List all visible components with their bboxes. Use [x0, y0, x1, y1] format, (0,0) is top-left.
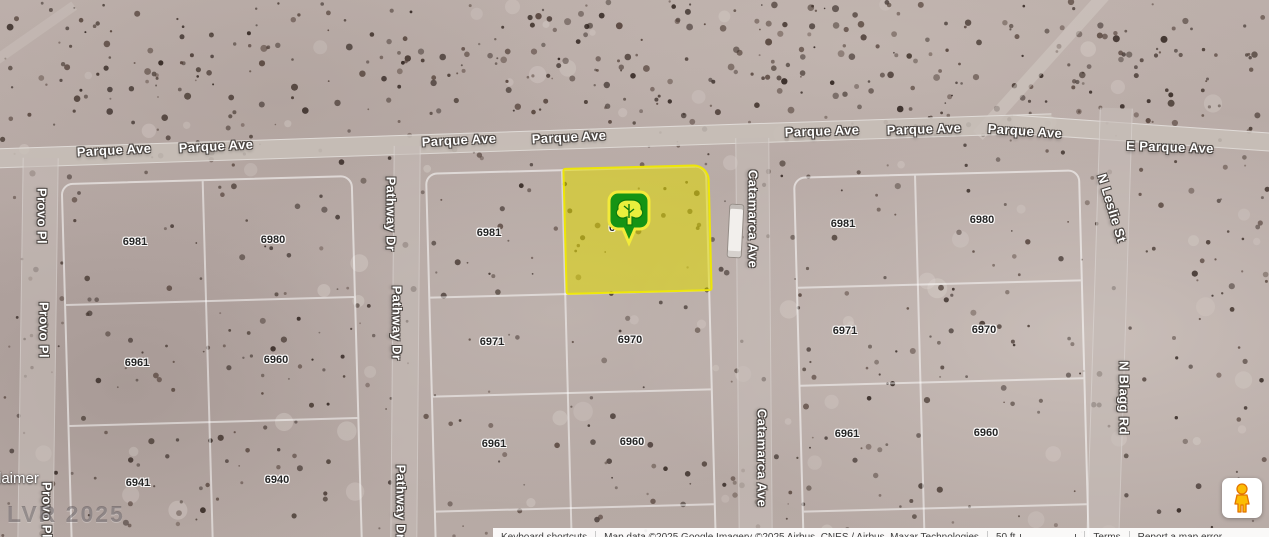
street-label-provo-pl: Provo Pl [37, 302, 52, 358]
report-map-error-link[interactable]: Report a map error [1130, 532, 1230, 537]
street-label-parque-ave: Parque Ave [886, 120, 961, 138]
parcel-number: 6941 [126, 477, 150, 489]
parcel-number: 6960 [974, 427, 998, 439]
parcel-number: 6970 [618, 334, 642, 346]
parcel-line [436, 503, 714, 512]
parcel-number: 6961 [482, 438, 506, 450]
parcel-number: 6980 [970, 214, 994, 226]
parcel-number: 6981 [831, 218, 855, 230]
parcel-number: 6981 [477, 227, 501, 239]
parcel-line [202, 181, 215, 537]
lvr-watermark: LVR 2025 [7, 501, 125, 528]
parcel-number: 6971 [833, 325, 857, 337]
attribution-bar: Keyboard shortcuts Map data ©2025 Google… [493, 528, 1269, 537]
parcel-number: 6960 [620, 436, 644, 448]
parcel-number: 6961 [125, 357, 149, 369]
trailer-structure [727, 204, 745, 259]
pegman-control[interactable] [1222, 478, 1262, 518]
street-label-pathway-dr: Pathway Dr [384, 177, 399, 252]
parcel-line [914, 176, 926, 537]
parcel-number: 6981 [123, 236, 147, 248]
disclaimer-text-fragment: laimer [0, 470, 39, 487]
parcel-line [69, 417, 357, 427]
tree-land-listing-marker-icon[interactable] [606, 189, 652, 249]
parcel-number: 6980 [261, 234, 285, 246]
parcel-line [804, 503, 1087, 512]
scale-control: 50 ft [988, 532, 1084, 537]
scale-label: 50 ft [996, 532, 1015, 537]
parcel-block-left [61, 175, 364, 537]
street-label-n-blagg-rd: N Blagg Rd [1117, 361, 1132, 435]
parcel-number: 6971 [480, 336, 504, 348]
street-label-pathway-dr: Pathway Dr [394, 465, 409, 537]
parcel-number: 6961 [835, 428, 859, 440]
street-label-pathway-dr: Pathway Dr [390, 286, 405, 361]
street-label-catamarca-ave: Catamarca Ave [755, 409, 770, 507]
street-label-e-parque-ave: E Parque Ave [1126, 138, 1214, 156]
scale-bar [1020, 534, 1076, 537]
pegman-icon [1231, 483, 1253, 513]
map-canvas[interactable]: Parque Ave Parque Ave Parque Ave Parque … [0, 0, 1269, 537]
parcel-line [798, 279, 1081, 288]
parcel-number: 6940 [265, 474, 289, 486]
parcel-line [433, 388, 711, 397]
map-data-credit: Map data ©2025 Google Imagery ©2025 Airb… [596, 532, 987, 537]
parcel-line [800, 377, 1083, 386]
street-label-parque-ave: Parque Ave [784, 122, 859, 140]
street-label-catamarca-ave: Catamarca Ave [746, 170, 761, 268]
parcel-number: 6970 [972, 324, 996, 336]
keyboard-shortcuts-link[interactable]: Keyboard shortcuts [493, 532, 595, 537]
terms-link[interactable]: Terms [1085, 532, 1128, 537]
parcel-number: 6960 [264, 354, 288, 366]
parcel-line [66, 296, 354, 306]
street-label-provo-pl: Provo Pl [35, 188, 50, 244]
